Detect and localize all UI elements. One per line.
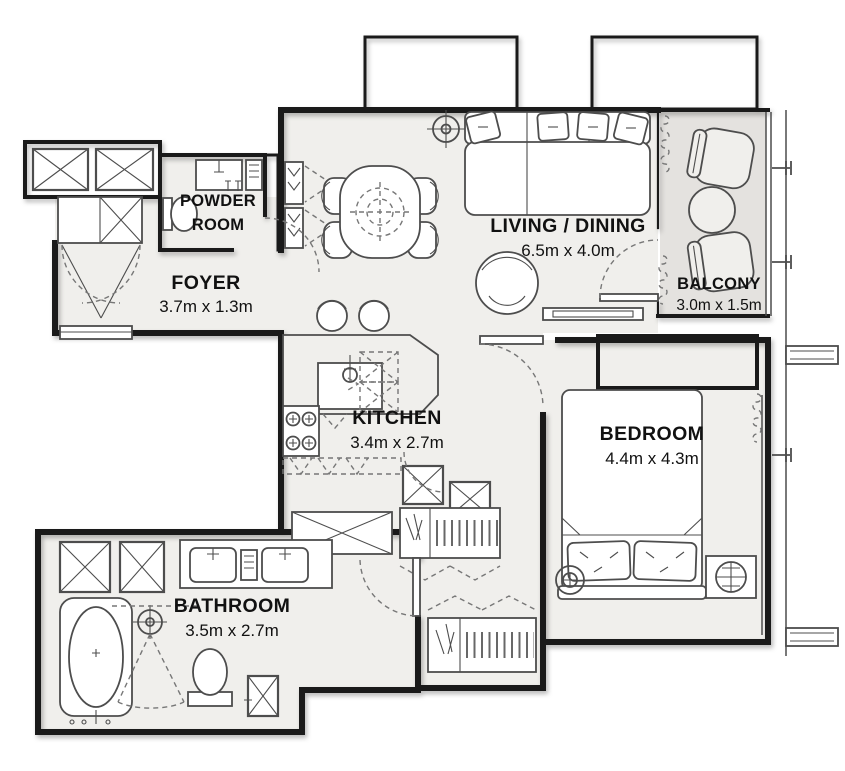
dims-bedroom: 4.4m x 4.3m [605,449,699,468]
bathroom-notch [302,690,418,732]
structure-bump-right [592,37,757,109]
dims-balcony: 3.0m x 1.5m [676,297,761,314]
floor-plan-canvas: POWDER ROOM FOYER 3.7m x 1.3m LIVING / D… [0,0,845,771]
bed-pillow [567,541,630,581]
facade-fin-bottom [786,628,838,646]
shaft-box [248,676,278,716]
label-kitchen: KITCHEN [352,407,441,429]
dims-kitchen: 3.4m x 2.7m [350,433,444,452]
facade [762,110,838,656]
bar-stool [359,301,389,331]
vanity [180,540,332,588]
sofa-pillow [465,111,501,144]
label-living-dining: LIVING / DINING [490,215,646,237]
headboard [558,586,706,599]
sofa-pillow [577,112,609,142]
label-powder-room-2: ROOM [192,216,245,234]
bed-pillow [633,541,696,581]
stove [283,406,319,456]
floor-plan: POWDER ROOM FOYER 3.7m x 1.3m LIVING / D… [0,0,845,771]
label-bathroom: BATHROOM [174,595,291,617]
armchair [476,252,538,314]
balcony-rail [766,112,771,316]
label-foyer: FOYER [171,272,240,294]
balcony-door-leaf [600,294,658,301]
bathroom-door-leaf [413,558,420,616]
bed [558,390,706,599]
sofa [465,111,650,215]
label-bedroom: BEDROOM [600,423,705,445]
tv-console [543,308,643,320]
label-balcony: BALCONY [677,275,761,293]
shaft-box [120,542,164,592]
dims-bathroom: 3.5m x 2.7m [185,621,279,640]
bedroom-door-leaf [480,336,543,344]
structure-bump-left [365,37,517,109]
sofa-pillow [537,112,569,141]
balcony-table [689,187,735,233]
facade-fin-top [786,346,838,364]
label-powder-room: POWDER [180,192,256,210]
facade-ticks [772,161,791,462]
sofa-pillow [613,112,649,145]
bathtub [60,598,132,724]
shaft-box [60,542,110,592]
shaft-box [96,149,153,190]
shaft-box [33,149,88,190]
nightstand [706,556,756,598]
dims-foyer: 3.7m x 1.3m [159,297,253,316]
bar-stool [317,301,347,331]
dims-living-dining: 6.5m x 4.0m [521,241,615,260]
